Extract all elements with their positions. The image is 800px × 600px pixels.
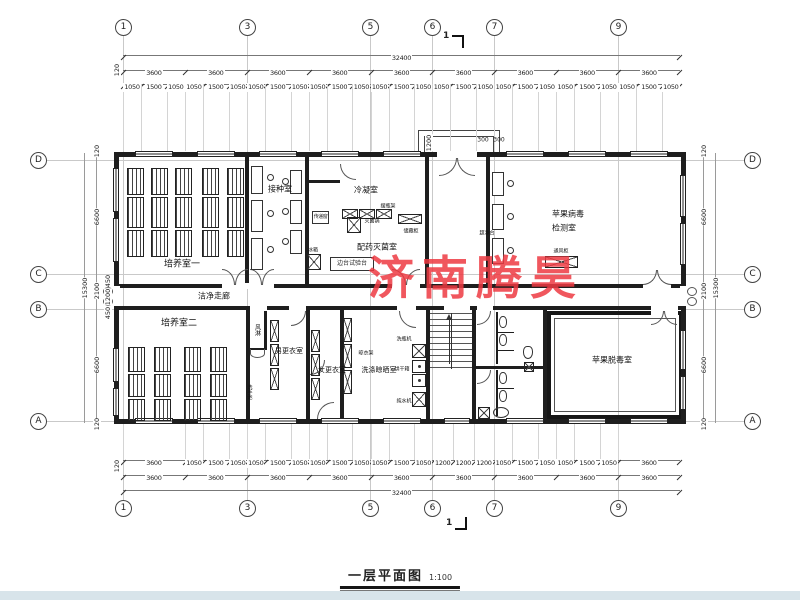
dim-value: 1500 <box>517 83 534 92</box>
dim-cell: 1050 <box>662 74 680 84</box>
dim-cell: 1500 <box>389 74 415 84</box>
dim-value: 120 <box>700 145 708 157</box>
dim-cell: 3600 <box>371 60 433 70</box>
label-wash-basin: 洗手池 <box>247 385 254 400</box>
dim-cell: 1500 <box>389 450 415 460</box>
dim-value: 1050 <box>538 83 555 92</box>
dim-value: 1200 <box>425 135 433 152</box>
door-arc <box>477 311 491 325</box>
label-air-shower: 风淋 <box>253 324 262 336</box>
dim-cell: 1050 <box>229 74 247 84</box>
cabinet-x <box>311 330 320 352</box>
dim-cell: 1500 <box>265 450 291 460</box>
dim-row-bottom-total: 32400 <box>123 480 680 491</box>
window <box>630 151 668 157</box>
dim-value: 15300 <box>712 278 720 299</box>
section-cut-label-bottom: 1 <box>446 518 452 528</box>
cabinet-x <box>412 344 426 358</box>
axis-bubble: 3 <box>239 500 256 517</box>
dim-cell: 1050 <box>185 74 203 84</box>
dim-cell: 1500 <box>141 74 167 84</box>
dim-cell: 1050 <box>291 74 309 84</box>
dim-cell: 1050 <box>494 450 512 460</box>
cabinet-x <box>311 378 320 400</box>
page-bottom-strip <box>0 591 800 600</box>
window <box>259 151 297 157</box>
wall <box>246 310 250 419</box>
shelving-rack <box>151 230 168 257</box>
toilet <box>499 390 507 402</box>
dim-cell: 1050 <box>618 74 636 84</box>
dim-cell: 3600 <box>618 450 680 460</box>
label-fridge: 冰箱 <box>308 247 318 254</box>
dim-cell: 1050 <box>600 74 618 84</box>
axis-bubble: 6 <box>424 500 441 517</box>
oven-box <box>412 360 426 373</box>
work-bench <box>251 166 263 194</box>
label-clean-bench: 超净台 <box>479 230 494 237</box>
wall <box>543 310 547 419</box>
dim-cell: 1050 <box>309 450 327 460</box>
dim-cell: 1050 <box>371 450 389 460</box>
shelving-rack <box>210 347 227 372</box>
toilet <box>499 334 507 346</box>
wall <box>264 310 267 350</box>
dim-cell: 1200 <box>453 450 474 460</box>
dim-value: 1050 <box>291 83 308 92</box>
dim-cell: 3600 <box>123 450 185 460</box>
oven-box <box>412 374 426 387</box>
cabinet-x <box>478 407 490 419</box>
dim-cell: 1500 <box>203 450 229 460</box>
dim-cell: 3600 <box>247 60 309 70</box>
dim-cell: 3600 <box>185 60 247 70</box>
shelving-rack <box>128 399 145 421</box>
dim-value: 1500 <box>207 83 224 92</box>
dim-value: 1050 <box>477 83 494 92</box>
pass-box-label: 传递窗 <box>313 212 328 223</box>
watermark-text: 济南腾昊 <box>368 251 584 306</box>
dim-cell: 3600 <box>247 465 309 475</box>
floor-plan-sheet: 32400 3600360036003600360036003600360036… <box>0 0 800 600</box>
dim-value: 1500 <box>145 83 162 92</box>
dim-cell: 1050 <box>167 74 185 84</box>
dim-cell: 1500 <box>265 74 291 84</box>
stool <box>507 180 514 187</box>
window <box>506 151 544 157</box>
dim-value: 6600 <box>93 357 101 374</box>
dim-cell: 1500 <box>512 74 538 84</box>
drawing-title-block: 一层平面图1:100 <box>340 565 460 589</box>
door-opening <box>437 151 477 158</box>
axis-bubble: 7 <box>486 19 503 36</box>
dim-value: 1500 <box>331 83 348 92</box>
dim-value: 1050 <box>415 83 432 92</box>
axis-bubble: 9 <box>610 19 627 36</box>
door-opening <box>680 286 687 306</box>
shelving-rack <box>184 374 201 397</box>
stool <box>267 174 274 181</box>
wall <box>472 310 476 419</box>
cabinet-x <box>270 320 279 342</box>
axis-bubble: A <box>30 413 47 430</box>
shelving-rack <box>127 197 144 228</box>
window <box>568 151 606 157</box>
axis-bubble: 1 <box>115 500 132 517</box>
dim-value: 1050 <box>309 83 326 92</box>
dim-cell: 1050 <box>309 74 327 84</box>
label-oven: 烘干箱 <box>394 366 409 373</box>
dim-row-bottom-bays: 360036003600360036003600360036003600 <box>123 465 680 476</box>
dim-cell: 1050 <box>247 74 265 84</box>
dim-cell: 3600 <box>556 60 618 70</box>
dim-cell: 1050 <box>123 74 141 84</box>
dim-value: 1050 <box>371 83 388 92</box>
axis-bubble: C <box>744 266 761 283</box>
urinal <box>523 346 533 359</box>
dim-cell: 1500 <box>574 450 600 460</box>
dim-value: 6600 <box>93 209 101 226</box>
label-water-machine: 纯水机 <box>396 398 411 405</box>
axis-line <box>46 160 754 161</box>
shelving-rack <box>128 347 145 372</box>
dim-cell: 1050 <box>556 74 574 84</box>
axis-bubble: 9 <box>610 500 627 517</box>
window <box>680 175 686 217</box>
dim-value: 6600 <box>700 357 708 374</box>
dim-cell: 1500 <box>636 74 662 84</box>
door-arc <box>235 269 248 285</box>
dim-row-top-bays: 360036003600360036003600360036003600 <box>123 60 680 71</box>
work-bench <box>290 230 302 254</box>
toilet <box>499 316 507 328</box>
dim-cell: 3600 <box>432 60 494 70</box>
dim-value: 120 <box>93 418 101 430</box>
dim-cell: 3600 <box>556 465 618 475</box>
axis-bubble: B <box>30 301 47 318</box>
dim-cell: 3600 <box>185 465 247 475</box>
side-test-bench-label: 边台试验台 <box>331 258 373 270</box>
dim-value: 32400 <box>391 489 412 498</box>
window <box>321 151 359 157</box>
section-cut-mark-top <box>452 35 464 48</box>
label-sterilizer: 灭菌锅 <box>364 218 379 225</box>
dim-cell: 3600 <box>494 60 556 70</box>
door-arc <box>222 269 235 285</box>
toilet <box>499 372 507 384</box>
window <box>680 223 686 265</box>
dim-value: 1050 <box>618 83 635 92</box>
cabinet-x <box>398 214 422 224</box>
dim-value: 120 <box>93 145 101 157</box>
axis-bubble: 6 <box>424 19 441 36</box>
dim-value: 1050 <box>600 83 617 92</box>
drawing-title: 一层平面图 <box>348 569 423 584</box>
door-opening <box>250 305 267 311</box>
axis-bubble: 5 <box>362 500 379 517</box>
dim-value: 1050 <box>167 83 184 92</box>
dim-value: 120 <box>113 460 121 472</box>
section-cut-label-top: 1 <box>443 31 449 41</box>
room-label-culture-2: 培养室二 <box>161 316 197 329</box>
dim-cell: 1050 <box>556 450 574 460</box>
door-arc <box>439 158 457 176</box>
dim-value: 450 <box>104 275 112 287</box>
shelving-rack <box>227 197 244 228</box>
dim-value: 1500 <box>578 83 595 92</box>
dim-cell: 1500 <box>512 450 538 460</box>
shelving-rack <box>184 347 201 372</box>
shelving-rack <box>210 399 227 421</box>
door-arc <box>250 269 262 285</box>
axis-bubble: 1 <box>115 19 132 36</box>
shelving-rack <box>127 230 144 257</box>
axis-bubble: A <box>744 413 761 430</box>
work-bench <box>251 238 263 270</box>
room-label-culture-1: 培养室一 <box>164 257 200 270</box>
dim-cell: 3600 <box>309 465 371 475</box>
dim-cell: 1050 <box>247 450 265 460</box>
shelving-rack <box>210 374 227 397</box>
wall <box>306 180 340 183</box>
dim-value: 1050 <box>247 83 264 92</box>
label-dry-rack: 晾衣架 <box>358 350 373 357</box>
stool <box>267 246 274 253</box>
dim-value: 1500 <box>393 83 410 92</box>
stair-direction-arrow <box>449 319 450 364</box>
shelving-rack <box>184 399 201 421</box>
room-label-clean-corridor: 洁净走廊 <box>198 291 230 302</box>
dim-cell: 3600 <box>371 465 433 475</box>
work-bench <box>492 204 504 230</box>
dim-value: 1050 <box>123 83 140 92</box>
room-label-virus-test-line2: 检测室 <box>552 223 576 234</box>
dim-value: 1050 <box>556 83 573 92</box>
axis-bubble: 7 <box>486 500 503 517</box>
room-label-men-change: 男更衣室 <box>275 346 303 356</box>
label-bottle-rack: 摆瓶架 <box>380 203 395 210</box>
shelving-rack <box>127 168 144 195</box>
dim-cell: 1050 <box>371 74 389 84</box>
door-arc <box>340 164 356 180</box>
dim-value: 1050 <box>353 83 370 92</box>
pass-box: 传递窗 <box>312 211 329 224</box>
window <box>113 168 119 212</box>
stool <box>282 208 289 215</box>
dim-value: 1050 <box>433 83 450 92</box>
dim-cell: 1500 <box>327 74 353 84</box>
dim-cell: 3600 <box>494 465 556 475</box>
dim-cell: 32400 <box>123 45 680 55</box>
dim-value: 1050 <box>662 83 679 92</box>
shelving-rack <box>154 399 171 421</box>
dim-value: 300 <box>477 137 488 144</box>
dim-cell: 3600 <box>123 60 185 70</box>
door-arc <box>317 402 334 419</box>
dim-cell: 3600 <box>309 60 371 70</box>
dim-cell: 1200 <box>474 450 495 460</box>
dim-cell: 1050 <box>600 450 618 460</box>
door-arc <box>457 158 475 176</box>
axis-bubble: D <box>744 152 761 169</box>
room-label-women-change: 女更衣室 <box>318 365 346 375</box>
cabinet-x <box>343 318 352 342</box>
wall <box>496 350 514 351</box>
room-label-condensing: 冷凝室 <box>354 185 378 196</box>
dim-cell: 1050 <box>185 450 203 460</box>
dim-cell: 1050 <box>494 74 512 84</box>
shelving-rack <box>154 374 171 397</box>
door-opening <box>113 286 120 306</box>
cabinet-x <box>347 217 361 233</box>
dim-value: 15300 <box>81 278 89 299</box>
door-arc <box>262 269 274 285</box>
room-label-virus-test-line1: 苹果病毒 <box>552 209 584 220</box>
window <box>113 388 119 416</box>
shelving-rack <box>175 168 192 195</box>
axis-bubble: B <box>744 301 761 318</box>
label-bottle-washer: 洗瓶机 <box>396 336 411 343</box>
window <box>630 418 668 424</box>
door-arc <box>687 297 697 306</box>
shelving-rack <box>128 374 145 397</box>
cabinet-x <box>307 254 321 270</box>
shelving-rack <box>202 197 219 228</box>
door-arc <box>399 311 416 328</box>
cabinet-x <box>270 368 279 390</box>
window <box>197 151 235 157</box>
dim-cell: 1050 <box>538 450 556 460</box>
label-storage-cabinet: 储藏柜 <box>403 228 418 235</box>
door-arc <box>687 287 697 296</box>
dim-value: 450 <box>104 307 112 319</box>
shelving-rack <box>175 197 192 228</box>
axis-bubble: C <box>30 266 47 283</box>
dim-value: 6600 <box>700 209 708 226</box>
shelving-rack <box>202 230 219 257</box>
dim-cell: 1050 <box>476 74 494 84</box>
cabinet-x <box>524 362 534 372</box>
shelving-rack <box>151 168 168 195</box>
dim-cell: 1050 <box>414 450 432 460</box>
dim-value: 300 <box>493 137 504 144</box>
dim-cell: 3600 <box>432 465 494 475</box>
dim-value: 2100 <box>93 283 101 300</box>
staircase <box>430 313 472 369</box>
dim-value: 120 <box>700 418 708 430</box>
wall <box>475 366 545 369</box>
dim-cell: 3600 <box>123 465 185 475</box>
floor-plan-drawing: 32400 3600360036003600360036003600360036… <box>0 0 800 600</box>
dim-row-top-total: 32400 <box>123 45 680 56</box>
stool <box>507 213 514 220</box>
dim-value: 1500 <box>269 83 286 92</box>
dim-cell: 1500 <box>450 74 476 84</box>
stool <box>282 238 289 245</box>
shelving-rack <box>227 168 244 195</box>
dim-value: 120 <box>113 64 121 76</box>
window <box>135 151 173 157</box>
dim-cell: 3600 <box>618 60 680 70</box>
dim-cell: 1500 <box>327 450 353 460</box>
dim-row-top-fine: 1050150010501050150010501050150010501050… <box>123 74 680 85</box>
wall <box>496 312 498 364</box>
wall <box>496 388 514 389</box>
door-arc <box>291 311 306 326</box>
dim-cell: 1050 <box>352 450 370 460</box>
dim-cell: 1500 <box>574 74 600 84</box>
shelving-rack <box>175 230 192 257</box>
dim-cell: 1200 <box>432 450 453 460</box>
dim-value: 2100 <box>700 283 708 300</box>
axis-bubble: 3 <box>239 19 256 36</box>
dim-value: 1200 <box>104 289 112 306</box>
window <box>680 376 686 410</box>
dim-cell: 1050 <box>229 450 247 460</box>
work-bench <box>251 200 263 232</box>
room-label-washing-drying: 洗涤晾晒室 <box>362 365 397 375</box>
stool <box>267 210 274 217</box>
room-label-detox: 苹果脱毒室 <box>592 355 632 366</box>
window <box>444 418 470 424</box>
cabinet-x <box>412 392 426 407</box>
dim-row-bottom-fine: 3600105015001050105015001050105015001050… <box>123 450 680 461</box>
shelving-rack <box>151 197 168 228</box>
dim-value: 1500 <box>640 83 657 92</box>
dim-cell: 1050 <box>291 450 309 460</box>
shelving-rack <box>227 230 244 257</box>
dim-cell: 32400 <box>123 480 680 490</box>
dim-value: 1050 <box>495 83 512 92</box>
axis-bubble: D <box>30 152 47 169</box>
window <box>113 218 119 262</box>
drawing-scale: 1:100 <box>429 573 452 582</box>
section-cut-mark-bottom <box>455 517 467 530</box>
dim-value: 1500 <box>455 83 472 92</box>
window <box>113 348 119 382</box>
wall <box>496 332 514 333</box>
window <box>680 330 686 370</box>
dim-cell: 3600 <box>618 465 680 475</box>
dim-cell: 1050 <box>538 74 556 84</box>
door-arc <box>477 370 491 384</box>
dim-cell: 1050 <box>432 74 450 84</box>
dim-cell: 1500 <box>203 74 229 84</box>
work-bench <box>290 200 302 224</box>
shelving-rack <box>202 168 219 195</box>
dim-cell: 1050 <box>352 74 370 84</box>
door-arc <box>250 349 265 358</box>
dim-value: 1050 <box>229 83 246 92</box>
room-label-inoculation: 接种室 <box>268 184 292 195</box>
dim-value: 1050 <box>185 83 202 92</box>
wash-sink <box>493 407 509 418</box>
window <box>383 151 421 157</box>
dim-cell: 1050 <box>414 74 432 84</box>
axis-bubble: 5 <box>362 19 379 36</box>
work-bench <box>492 172 504 196</box>
shelving-rack <box>154 347 171 372</box>
